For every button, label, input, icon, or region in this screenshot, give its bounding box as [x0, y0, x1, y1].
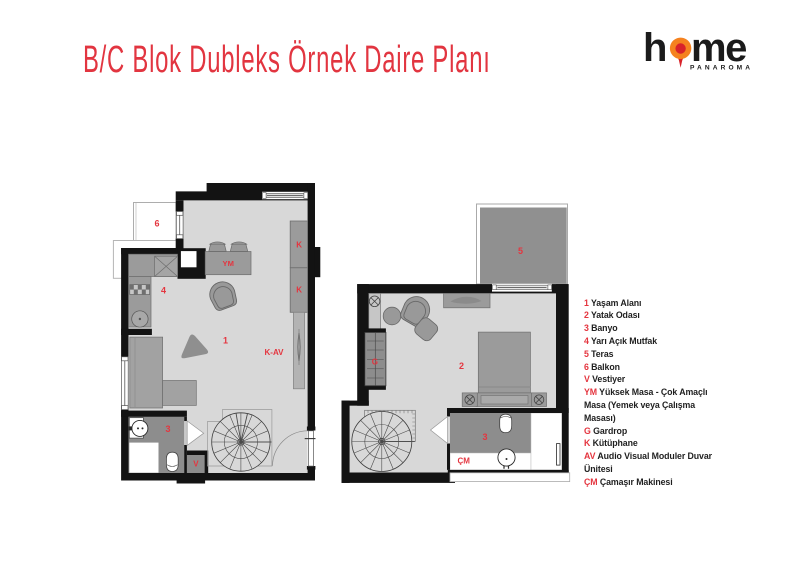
svg-text:V: V: [193, 460, 199, 469]
svg-text:3: 3: [166, 424, 171, 434]
svg-text:6: 6: [155, 219, 160, 229]
svg-text:YM: YM: [223, 259, 234, 268]
svg-text:3: 3: [483, 432, 488, 442]
svg-text:G: G: [372, 358, 378, 367]
svg-text:4: 4: [161, 286, 166, 296]
svg-text:K: K: [296, 286, 302, 295]
svg-text:me: me: [691, 26, 746, 70]
svg-text:K-AV: K-AV: [265, 348, 285, 357]
svg-text:K: K: [296, 241, 302, 250]
svg-text:PANAROMA: PANAROMA: [690, 65, 753, 72]
svg-text:ÇM: ÇM: [458, 457, 471, 466]
svg-text:h: h: [643, 26, 666, 70]
svg-text:5: 5: [518, 246, 523, 256]
svg-text:1: 1: [223, 336, 228, 346]
svg-text:2: 2: [459, 361, 464, 371]
